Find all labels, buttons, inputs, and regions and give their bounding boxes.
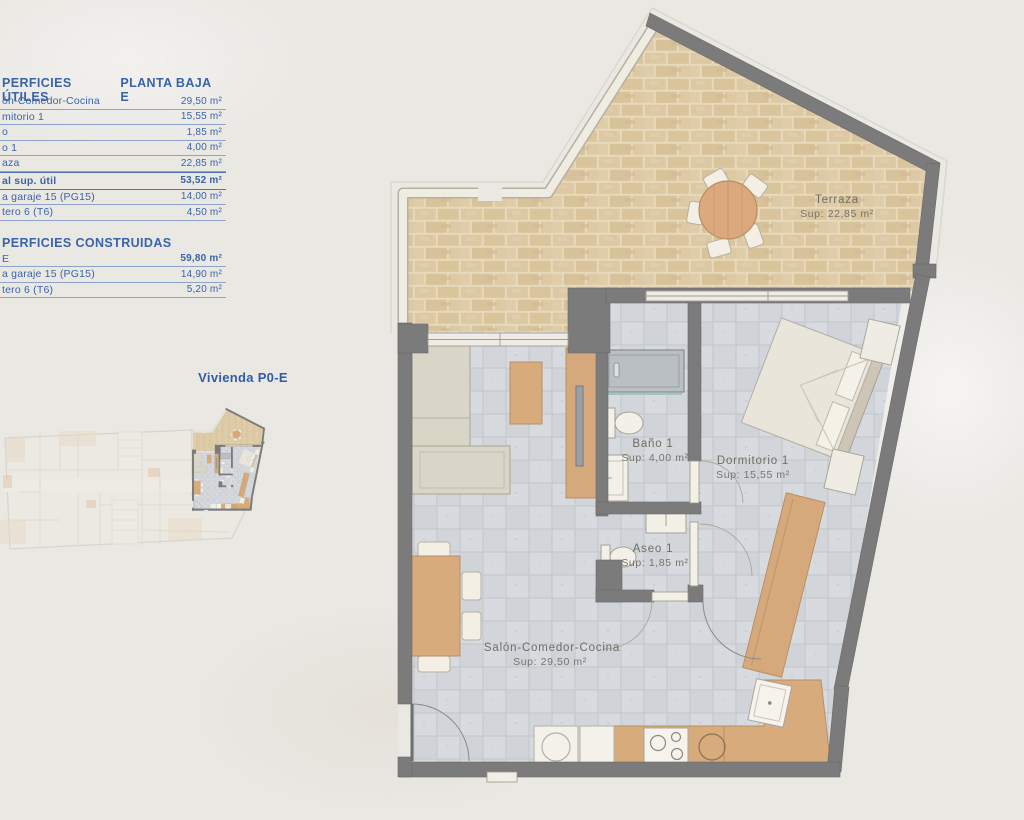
room-label-dormitorio: Dormitorio 1 [717, 455, 789, 467]
key-plan [0, 407, 266, 549]
key-plan-highlighted-unit [191, 407, 266, 511]
page: { "panel": { "title_left": "PERFICIES ÚT… [0, 0, 1024, 800]
room-label-bano: Baño 1 [632, 438, 673, 450]
room-label-terraza: Terraza [815, 194, 859, 206]
room-label-aseo: Aseo 1 [633, 543, 674, 555]
room-sup-aseo: Sup: 1,85 m² [621, 557, 688, 569]
main-unit-plan [391, 8, 947, 782]
room-sup-bano: Sup: 4,00 m² [621, 452, 688, 464]
room-label-salon: Salón-Comedor-Cocina [484, 642, 620, 654]
room-sup-terraza: Sup: 22,85 m² [800, 208, 874, 220]
floor-plan-svg: Terraza Sup: 22,85 m² Baño 1 Sup: 4,00 m… [0, 0, 1024, 800]
room-sup-dormitorio: Sup: 15,55 m² [716, 469, 790, 481]
room-sup-salon: Sup: 29,50 m² [513, 656, 587, 668]
